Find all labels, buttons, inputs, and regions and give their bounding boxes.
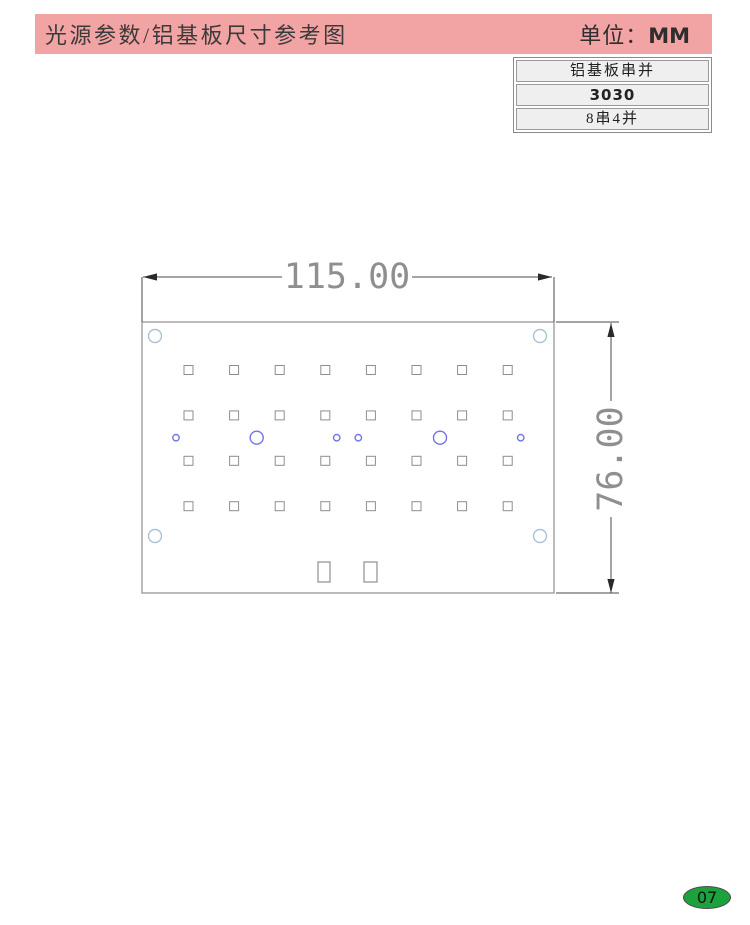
led-pad [503, 456, 512, 465]
connector-pad [364, 562, 377, 582]
led-pad [275, 366, 284, 375]
led-pad [458, 502, 467, 511]
width-dimension-label: 115.00 [284, 257, 410, 297]
led-pad [321, 502, 330, 511]
arrow-left-icon [143, 273, 157, 280]
led-pad [321, 366, 330, 375]
board-outline [142, 322, 554, 593]
led-pad [458, 456, 467, 465]
arrow-down-icon [607, 579, 614, 593]
arrow-up-icon [607, 323, 614, 337]
led-pad [412, 502, 421, 511]
led-pad [230, 366, 239, 375]
pcb-dimension-drawing: 115.0076.00 [0, 0, 750, 925]
led-pad [321, 456, 330, 465]
mounting-hole [534, 530, 547, 543]
mounting-hole [149, 330, 162, 343]
led-pad-grid [184, 366, 512, 511]
led-pad [184, 456, 193, 465]
led-pad [366, 456, 375, 465]
led-pad [503, 502, 512, 511]
connector-pad [318, 562, 330, 582]
led-pad [321, 411, 330, 420]
led-pad [275, 502, 284, 511]
mounting-hole [534, 330, 547, 343]
via-hole [250, 431, 263, 444]
connector-pads [318, 562, 377, 582]
mounting-hole [149, 530, 162, 543]
led-pad [503, 411, 512, 420]
led-pad [184, 411, 193, 420]
led-pad [230, 456, 239, 465]
via-hole [355, 435, 361, 441]
led-pad [230, 411, 239, 420]
dimension-width: 115.00 [142, 257, 554, 322]
led-pad [275, 456, 284, 465]
page-number-badge: 07 [683, 886, 731, 909]
mounting-holes [149, 330, 547, 543]
led-pad [184, 366, 193, 375]
led-pad [503, 366, 512, 375]
led-pad [412, 411, 421, 420]
led-pad [184, 502, 193, 511]
via-hole [334, 435, 340, 441]
led-pad [275, 411, 284, 420]
led-pad [230, 502, 239, 511]
dimension-height: 76.00 [556, 322, 631, 593]
led-pad [458, 411, 467, 420]
led-pad [366, 366, 375, 375]
page-number: 07 [697, 888, 717, 907]
arrow-right-icon [538, 273, 552, 280]
via-hole [434, 431, 447, 444]
via-hole [173, 435, 179, 441]
led-pad [412, 366, 421, 375]
led-pad [366, 502, 375, 511]
via-holes [173, 431, 524, 444]
catalog-page: 光源参数/铝基板尺寸参考图 单位：MM 铝基板串并 3030 8串4并 115.… [0, 0, 750, 925]
led-pad [412, 456, 421, 465]
height-dimension-label: 76.00 [591, 406, 631, 511]
led-pad [366, 411, 375, 420]
led-pad [458, 366, 467, 375]
via-hole [518, 435, 524, 441]
